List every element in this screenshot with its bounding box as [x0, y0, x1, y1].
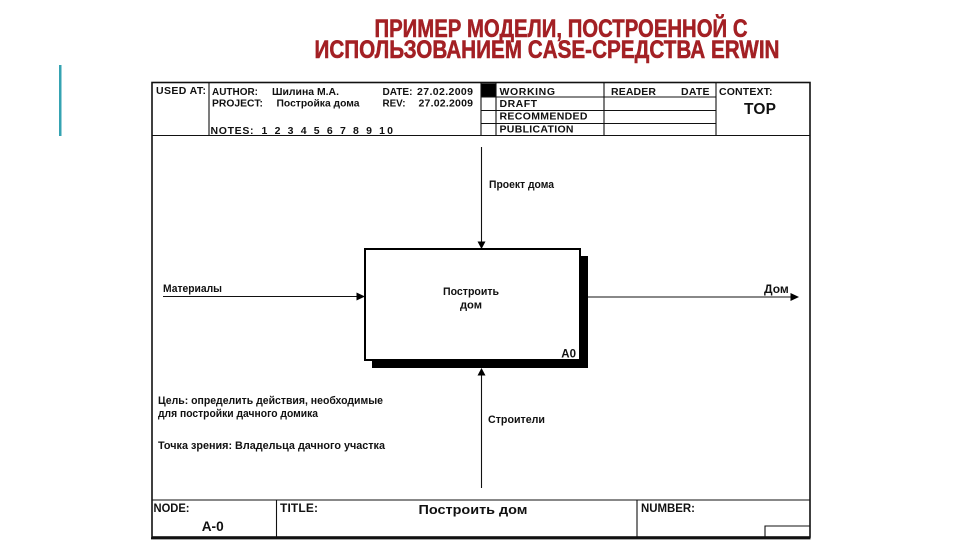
svg-text:AUTHOR:: AUTHOR: — [212, 86, 258, 98]
svg-text:Построить дом: Построить дом — [419, 502, 528, 517]
svg-text:PUBLICATION: PUBLICATION — [500, 124, 574, 136]
svg-text:Постройка дома: Постройка дома — [277, 98, 360, 110]
svg-text:USED AT:: USED AT: — [156, 85, 206, 97]
svg-text:WORKING: WORKING — [500, 86, 556, 98]
svg-text:PROJECT:: PROJECT: — [212, 98, 263, 110]
svg-text:Точка зрения: Владельца дачног: Точка зрения: Владельца дачного участка — [158, 440, 386, 452]
svg-text:DATE:: DATE: — [383, 86, 413, 98]
svg-text:REV:: REV: — [383, 98, 406, 110]
svg-text:TITLE:: TITLE: — [280, 501, 318, 515]
svg-text:Построить: Построить — [443, 286, 499, 298]
svg-text:DRAFT: DRAFT — [500, 98, 538, 110]
svg-text:A-0: A-0 — [202, 518, 224, 534]
svg-text:Дом: Дом — [764, 282, 789, 296]
svg-text:DATE: DATE — [681, 86, 710, 98]
svg-text:NOTES:: NOTES: — [211, 125, 254, 137]
svg-text:дом: дом — [460, 300, 482, 312]
svg-text:NUMBER:: NUMBER: — [641, 501, 695, 515]
svg-text:NODE:: NODE: — [154, 501, 190, 515]
svg-text:Строители: Строители — [488, 414, 545, 426]
svg-text:RECOMMENDED: RECOMMENDED — [500, 111, 588, 123]
svg-text:Проект дома: Проект дома — [489, 179, 555, 191]
svg-text:Цель: определить действия, нео: Цель: определить действия, необходимые — [158, 395, 383, 407]
svg-text:Шилина М.А.: Шилина М.А. — [272, 86, 339, 98]
svg-text:A0: A0 — [561, 349, 576, 361]
svg-text:Материалы: Материалы — [163, 283, 222, 295]
svg-text:TOP: TOP — [744, 101, 776, 118]
svg-text:для постройки дачного домика: для постройки дачного домика — [158, 408, 319, 420]
svg-text:27.02.2009: 27.02.2009 — [417, 86, 473, 98]
svg-text:ИСПОЛЬЗОВАНИЕМ CASE-СРЕДСТВА E: ИСПОЛЬЗОВАНИЕМ CASE-СРЕДСТВА ERWIN — [315, 36, 780, 64]
svg-text:READER: READER — [611, 86, 656, 98]
svg-text:CONTEXT:: CONTEXT: — [719, 86, 773, 98]
svg-text:27.02.2009: 27.02.2009 — [419, 98, 474, 110]
